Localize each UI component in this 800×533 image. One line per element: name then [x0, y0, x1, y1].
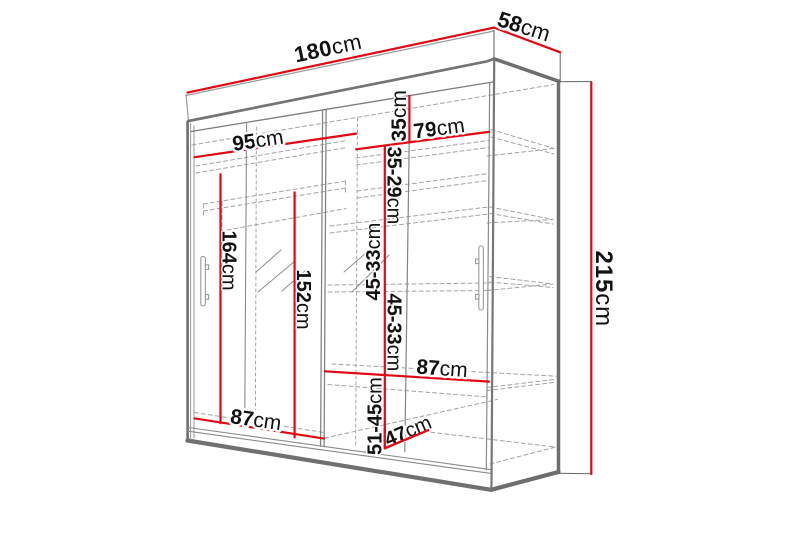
svg-text:51-45cm: 51-45cm: [365, 377, 387, 455]
svg-text:215cm: 215cm: [590, 251, 617, 328]
svg-text:164cm: 164cm: [217, 231, 239, 291]
svg-text:152cm: 152cm: [292, 270, 314, 330]
svg-text:45-33cm: 45-33cm: [382, 294, 404, 372]
svg-text:45-33cm: 45-33cm: [363, 223, 385, 301]
svg-text:35-29cm: 35-29cm: [382, 147, 404, 225]
svg-text:87cm: 87cm: [416, 356, 469, 383]
svg-text:35cm: 35cm: [388, 90, 411, 141]
